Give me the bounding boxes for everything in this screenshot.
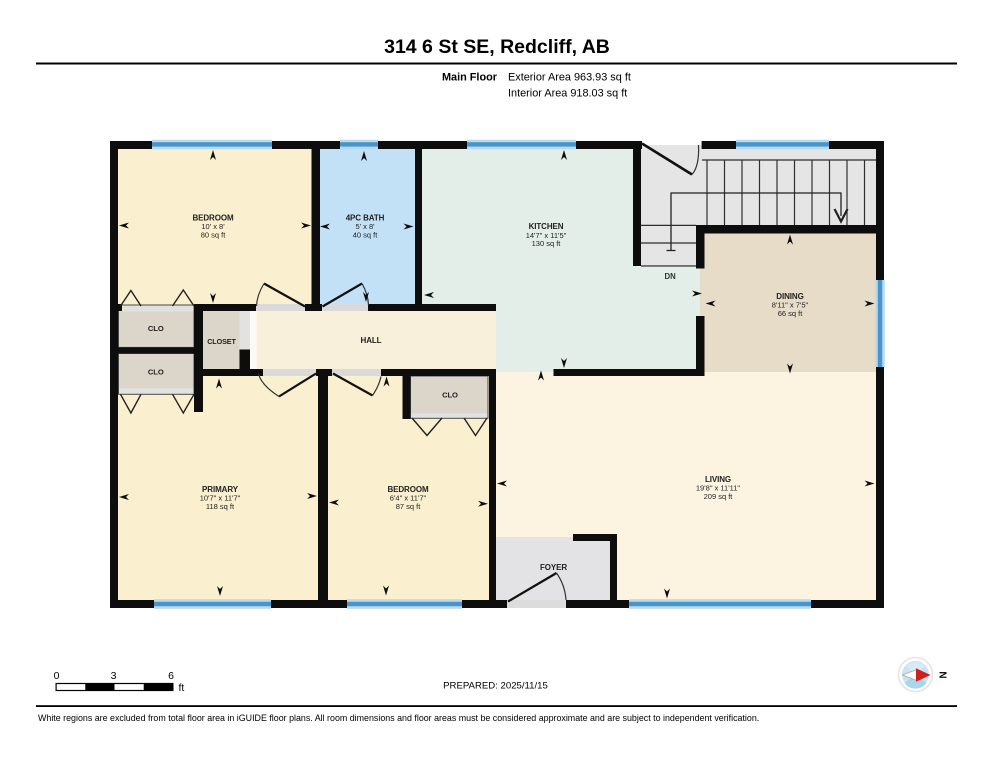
svg-text:6: 6 [168,670,174,682]
svg-text:DN: DN [665,272,677,281]
svg-text:40 sq ft: 40 sq ft [353,231,379,240]
svg-text:HALL: HALL [361,336,382,345]
svg-text:N: N [937,671,948,678]
svg-text:66 sq ft: 66 sq ft [778,309,804,318]
svg-text:4PC BATH: 4PC BATH [346,214,385,223]
svg-text:White regions are excluded fro: White regions are excluded from total fl… [38,713,759,723]
svg-text:209 sq ft: 209 sq ft [704,492,734,501]
svg-text:Exterior Area 963.93 sq ft: Exterior Area 963.93 sq ft [508,72,631,84]
svg-text:PREPARED: 2025/11/15: PREPARED: 2025/11/15 [443,681,548,692]
svg-text:BEDROOM: BEDROOM [192,214,234,223]
svg-text:CLO: CLO [148,368,164,377]
svg-text:80 sq ft: 80 sq ft [201,231,227,240]
svg-text:130 sq ft: 130 sq ft [532,239,562,248]
svg-text:ft: ft [179,682,185,694]
svg-text:CLO: CLO [442,391,458,400]
svg-text:118 sq ft: 118 sq ft [206,502,235,511]
svg-text:314 6 St SE, Redcliff, AB: 314 6 St SE, Redcliff, AB [384,36,610,58]
svg-text:Main Floor: Main Floor [442,72,498,84]
svg-text:CLO: CLO [148,324,164,333]
svg-text:FOYER: FOYER [540,563,567,572]
svg-text:Interior Area 918.03 sq ft: Interior Area 918.03 sq ft [508,88,627,100]
svg-text:CLOSET: CLOSET [207,337,236,346]
svg-text:3: 3 [111,670,117,682]
svg-text:87 sq ft: 87 sq ft [396,502,422,511]
svg-text:0: 0 [54,670,60,682]
